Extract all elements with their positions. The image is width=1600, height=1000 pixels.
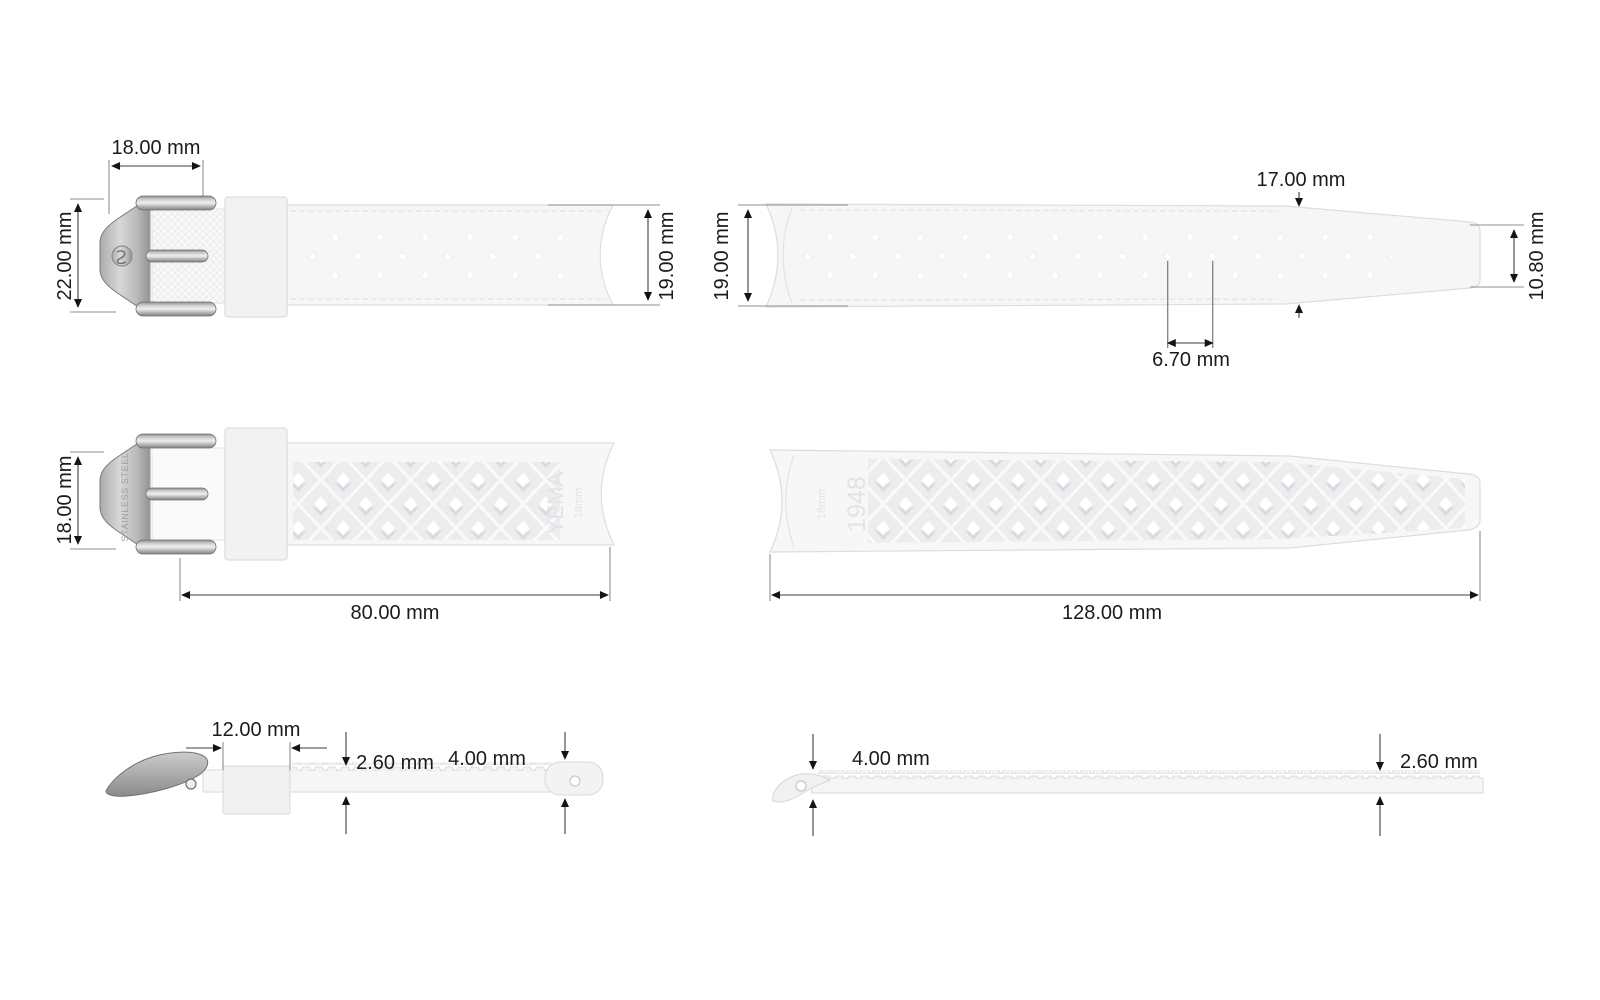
view-buckle-strap-side: 12.00 mm 2.60 mm 4.00 mm	[106, 719, 603, 834]
keeper-loop	[225, 197, 287, 317]
size-marking: 18mm	[573, 488, 585, 519]
strap-profile	[812, 778, 1483, 793]
buckle-pin-hole	[186, 779, 196, 789]
spring-bar-hole	[570, 776, 580, 786]
brand-marking: YEMA	[543, 472, 568, 535]
dim-taper-width-label: 17.00 mm	[1257, 169, 1346, 191]
perforation-field	[303, 229, 563, 285]
dim-length-label: 128.00 mm	[1062, 602, 1162, 624]
dim-strap-width-label: 19.00 mm	[656, 212, 678, 301]
dim-hole-spacing-label: 6.70 mm	[1152, 349, 1230, 371]
drawing-canvas: 18.00 mm 22.00 mm 19.00 mm 19.00 mm	[0, 0, 1600, 1000]
view-long-strap-side: 4.00 mm 2.60 mm	[773, 734, 1483, 836]
tropic-pattern-field	[868, 459, 1465, 543]
size-marking: 18mm	[816, 489, 828, 520]
dim-keeper-width-label: 12.00 mm	[212, 719, 301, 741]
buckle-profile	[106, 752, 208, 796]
keeper-loop	[225, 428, 287, 560]
spring-bar-hole	[796, 781, 806, 791]
buckle-engraving: STAINLESS STEEL	[120, 453, 130, 542]
strap-technical-drawing: 18.00 mm 22.00 mm 19.00 mm 19.00 mm	[0, 0, 1600, 1000]
dim-thickness-label: 2.60 mm	[356, 752, 434, 774]
dim-length-label: 80.00 mm	[351, 602, 440, 624]
dim-buckle-width-label: 18.00 mm	[112, 137, 201, 159]
dim-thickness-label: 2.60 mm	[1400, 751, 1478, 773]
dim-buckle-height-label: 22.00 mm	[54, 212, 76, 301]
dim-end-thickness-label: 4.00 mm	[852, 748, 930, 770]
dim-tip-width-label: 10.80 mm	[1526, 212, 1548, 301]
brand-marking: 1948	[843, 476, 871, 532]
keeper-loop-profile	[223, 766, 290, 814]
dim-lug-width-label: 18.00 mm	[54, 456, 76, 545]
tropic-pattern-field	[293, 462, 560, 540]
perforation-field	[800, 229, 1392, 285]
view-buckle-strap-flat: 18.00 mm 22.00 mm 19.00 mm	[54, 137, 678, 317]
view-long-strap-flat: 19.00 mm 17.00 mm 10.80 mm 6.70 mm	[711, 169, 1548, 371]
serrated-edge	[818, 770, 1480, 779]
view-long-strap-back: 1948 18mm 128.00 mm	[770, 450, 1480, 624]
dim-strap-width-label: 19.00 mm	[711, 212, 733, 301]
dim-end-thickness-label: 4.00 mm	[448, 748, 526, 770]
view-buckle-strap-back: YEMA 18mm STAINLESS STEEL 18.00 mm 80.00…	[54, 428, 614, 624]
